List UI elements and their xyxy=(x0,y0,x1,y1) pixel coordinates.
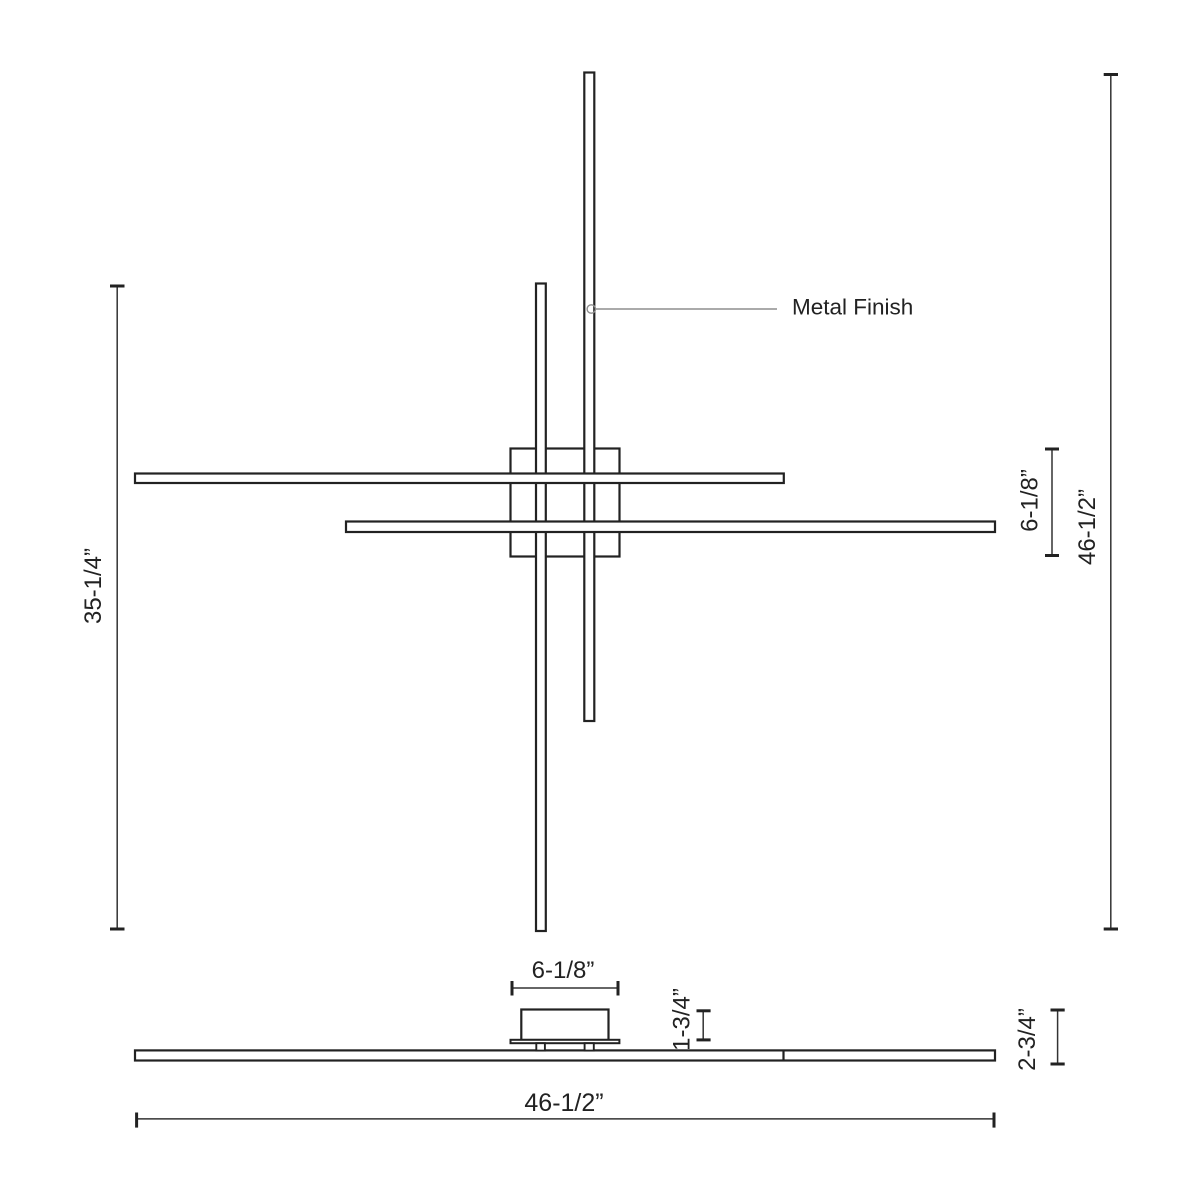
svg-text:46-1/2”: 46-1/2” xyxy=(524,1089,603,1117)
svg-text:35-1/4”: 35-1/4” xyxy=(80,548,107,624)
svg-text:6-1/8”: 6-1/8” xyxy=(532,957,595,984)
svg-text:46-1/2”: 46-1/2” xyxy=(1074,489,1101,565)
svg-text:2-3/4”: 2-3/4” xyxy=(1014,1008,1041,1071)
svg-text:6-1/8”: 6-1/8” xyxy=(1017,469,1044,532)
svg-text:1-3/4”: 1-3/4” xyxy=(669,988,696,1051)
svg-text:Metal Finish: Metal Finish xyxy=(792,295,913,320)
